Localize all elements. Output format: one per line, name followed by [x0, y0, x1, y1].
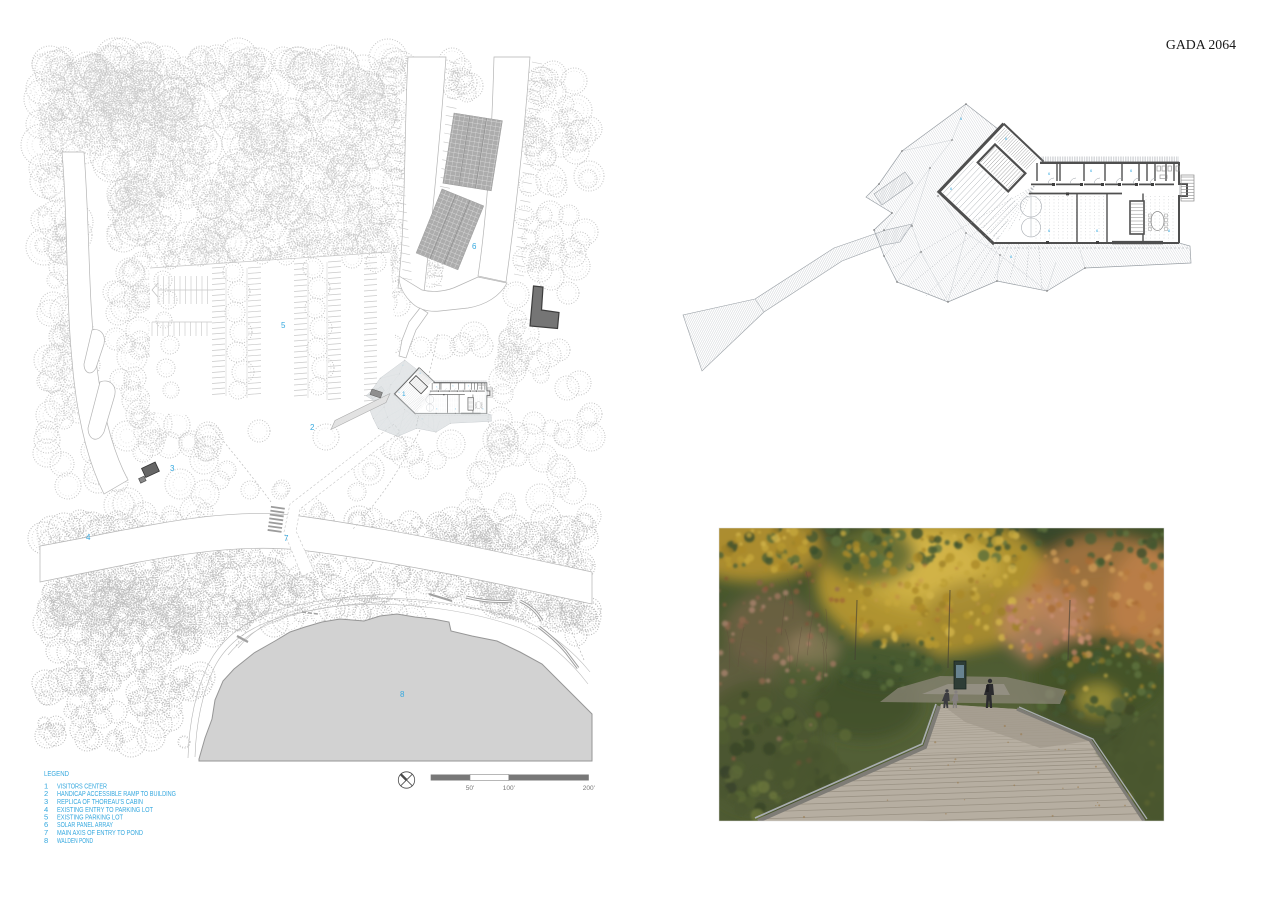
svg-text:8: 8 [44, 836, 48, 845]
svg-text:100': 100' [503, 785, 515, 792]
svg-text:50': 50' [466, 785, 474, 792]
svg-text:1: 1 [402, 391, 406, 398]
svg-text:5: 5 [281, 321, 286, 330]
svg-text:GADA 2064: GADA 2064 [1166, 37, 1236, 52]
svg-text:3: 3 [170, 464, 175, 473]
svg-text:WALDEN POND: WALDEN POND [57, 836, 93, 845]
svg-text:7: 7 [284, 534, 289, 543]
svg-text:200': 200' [583, 785, 595, 792]
svg-text:LEGEND: LEGEND [44, 769, 69, 778]
svg-text:2: 2 [310, 423, 315, 432]
svg-text:4: 4 [86, 533, 91, 542]
svg-text:6: 6 [472, 242, 477, 251]
svg-text:8: 8 [400, 690, 405, 699]
